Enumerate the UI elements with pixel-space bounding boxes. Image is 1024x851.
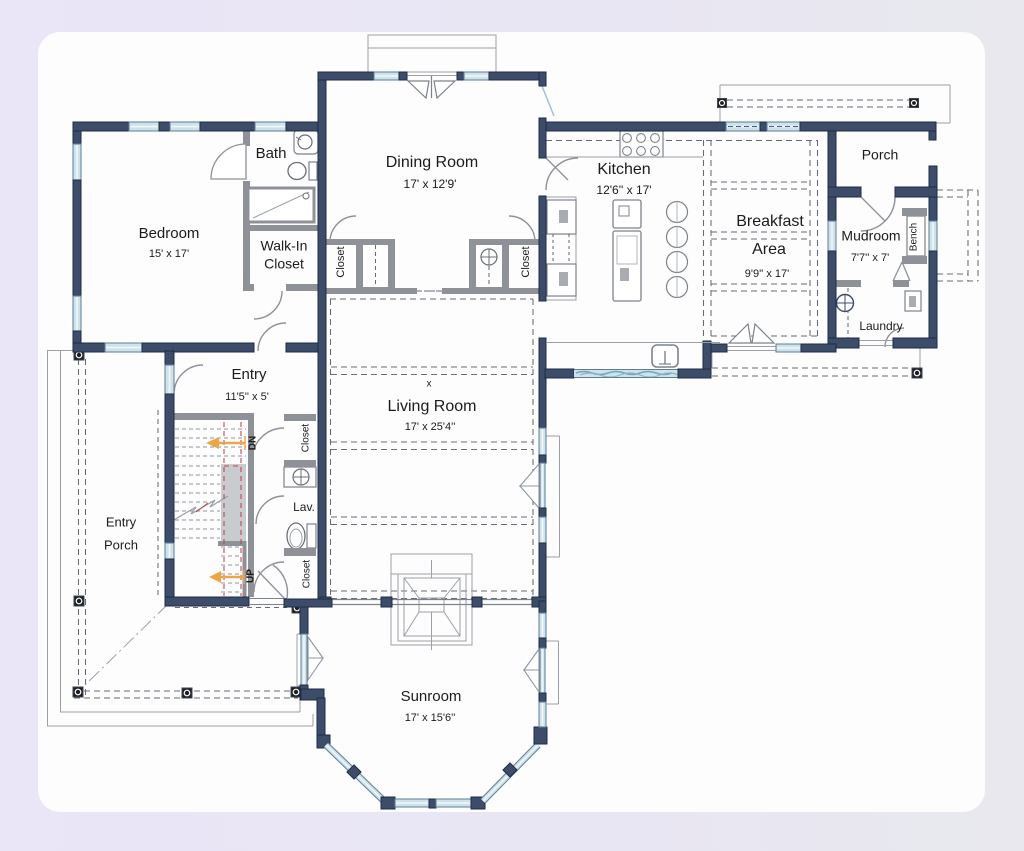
svg-text:Kitchen: Kitchen [597, 161, 650, 178]
svg-text:9'9'' x 17': 9'9'' x 17' [745, 268, 789, 280]
svg-text:Mudroom: Mudroom [841, 228, 900, 244]
svg-text:Porch: Porch [104, 537, 138, 552]
svg-text:Closet: Closet [301, 424, 312, 453]
svg-text:x: x [427, 379, 432, 390]
svg-text:Closet: Closet [335, 246, 347, 277]
svg-text:UP: UP [246, 569, 257, 583]
svg-text:Walk-In: Walk-In [261, 238, 308, 254]
svg-text:Bedroom: Bedroom [139, 225, 200, 242]
svg-text:7'7'' x 7': 7'7'' x 7' [851, 252, 889, 264]
svg-text:Area: Area [752, 241, 786, 258]
svg-text:Closet: Closet [264, 256, 304, 272]
svg-text:Entry: Entry [231, 366, 267, 383]
svg-text:Lav.: Lav. [293, 500, 315, 514]
svg-text:Dining Room: Dining Room [386, 154, 478, 171]
svg-text:12'6'' x 17': 12'6'' x 17' [596, 183, 651, 197]
svg-text:Closet: Closet [520, 246, 532, 277]
svg-text:Entry: Entry [106, 514, 137, 529]
svg-text:Bench: Bench [909, 223, 920, 251]
svg-text:Laundry: Laundry [859, 319, 902, 333]
svg-text:15' x 17': 15' x 17' [149, 248, 189, 260]
svg-text:11'5'' x 5': 11'5'' x 5' [225, 391, 269, 403]
svg-text:Closet: Closet [302, 560, 313, 589]
svg-text:Living Room: Living Room [388, 398, 477, 415]
svg-text:Breakfast: Breakfast [736, 213, 804, 230]
svg-text:DN: DN [248, 436, 259, 450]
svg-text:17' x 15'6'': 17' x 15'6'' [405, 712, 456, 724]
svg-text:Sunroom: Sunroom [401, 688, 462, 705]
svg-text:Bath: Bath [256, 145, 287, 162]
svg-text:17' x 12'9': 17' x 12'9' [404, 177, 457, 191]
svg-text:Porch: Porch [862, 147, 899, 163]
svg-text:17' x 25'4'': 17' x 25'4'' [405, 421, 456, 433]
